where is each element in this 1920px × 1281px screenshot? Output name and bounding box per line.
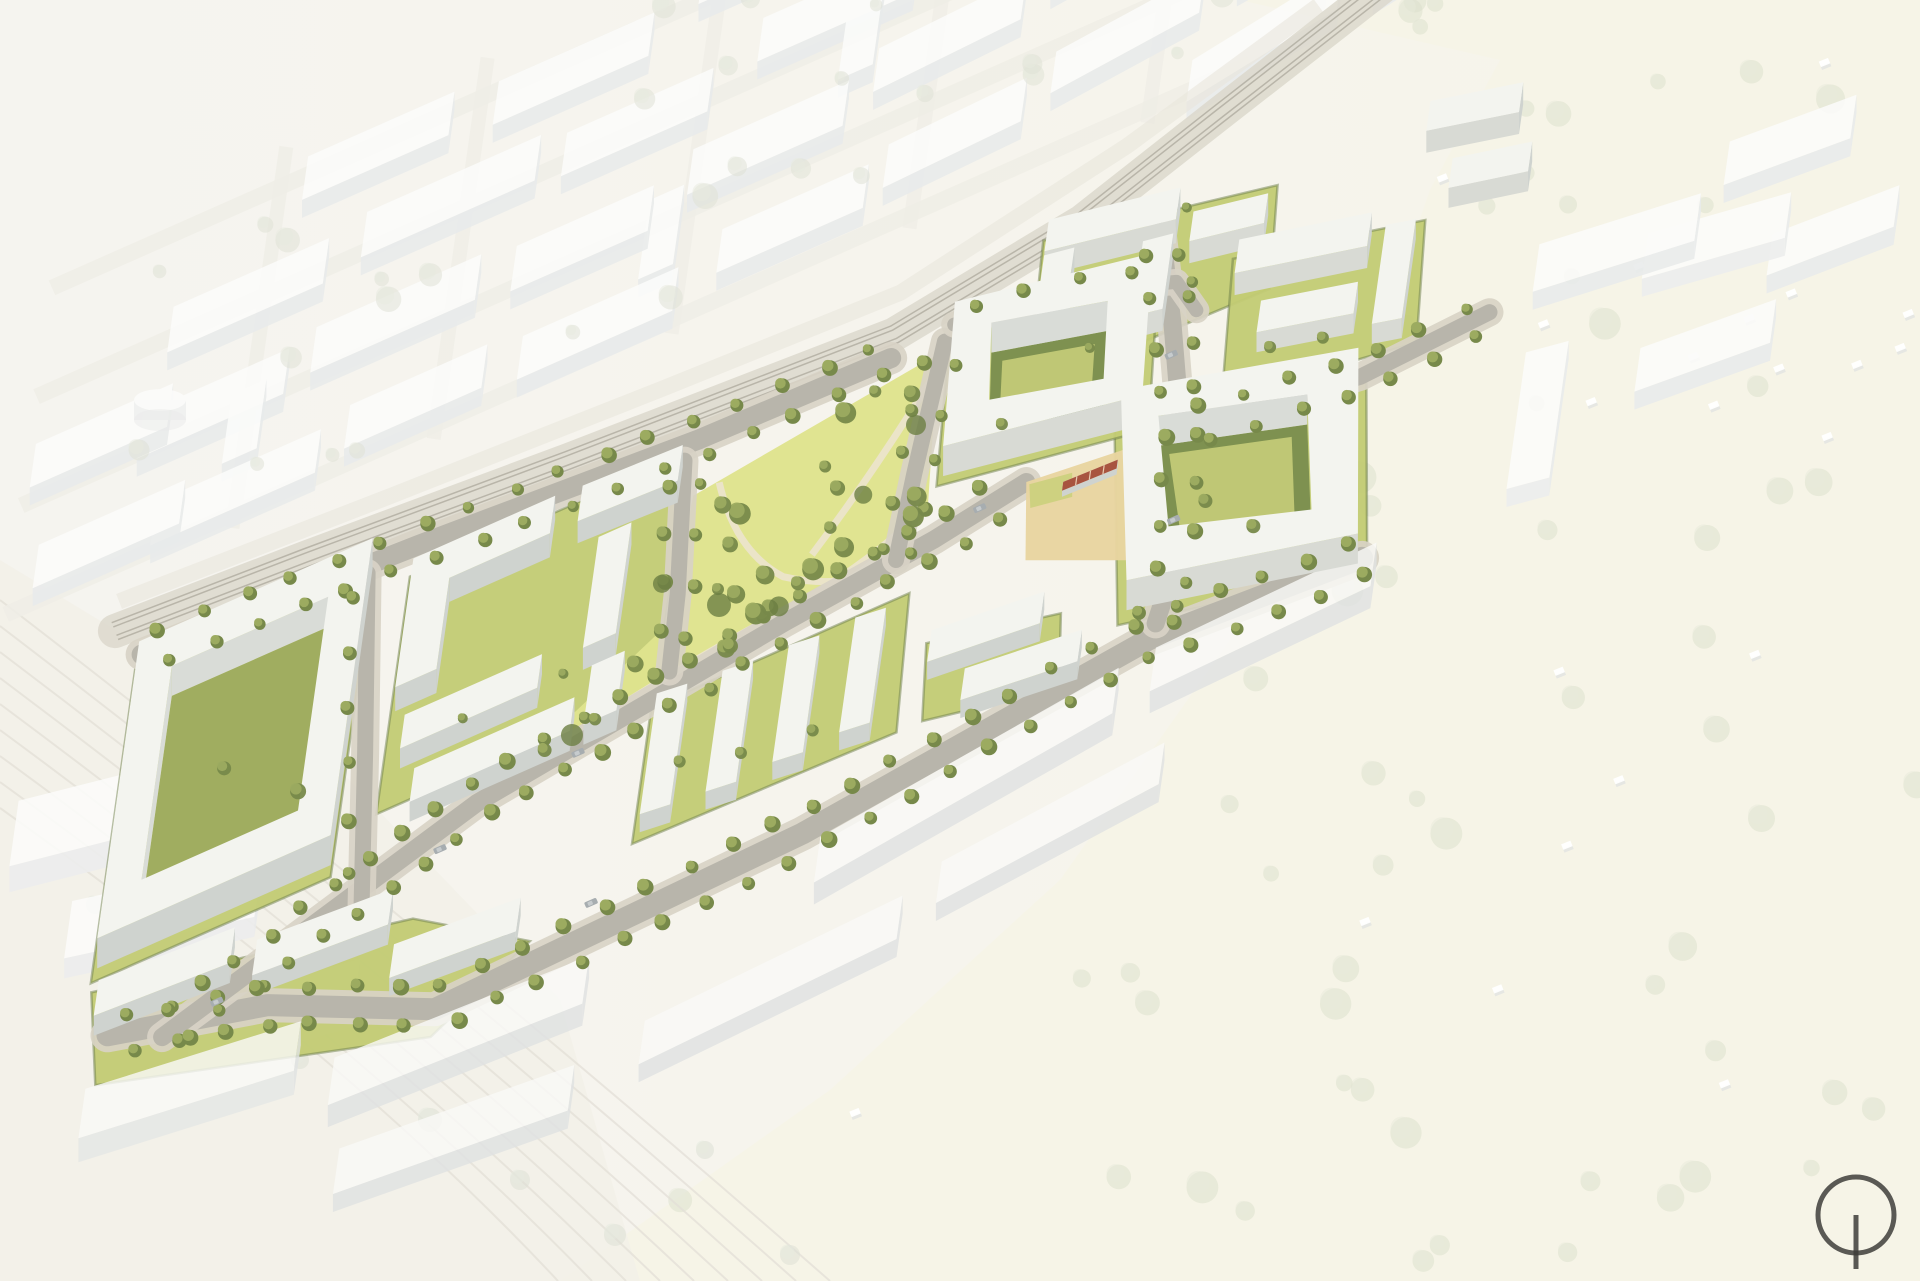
- masterplan-rendering: [0, 0, 1920, 1281]
- aerial-view-canvas: [0, 0, 1920, 1281]
